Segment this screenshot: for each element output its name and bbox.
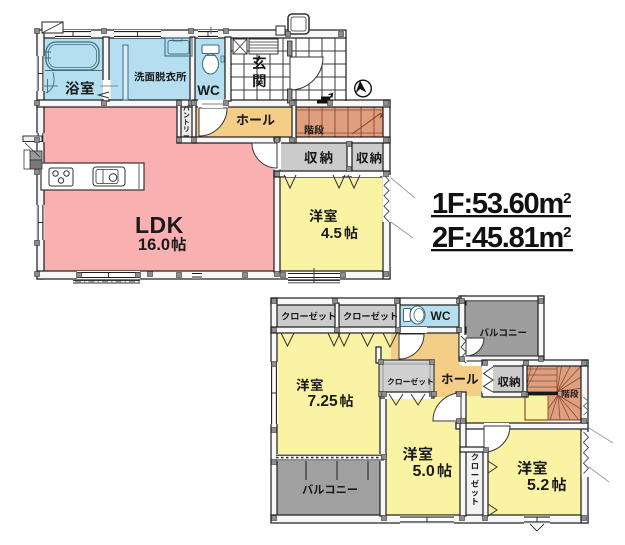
- svg-text:16.0: 16.0: [138, 236, 170, 254]
- svg-text:LDK: LDK: [135, 212, 184, 238]
- svg-text:WC: WC: [431, 309, 451, 323]
- svg-text:5.2: 5.2: [527, 477, 549, 494]
- svg-text:7.25: 7.25: [308, 393, 339, 410]
- svg-text:5.0: 5.0: [413, 463, 435, 480]
- svg-text:4.5: 4.5: [321, 225, 342, 242]
- svg-text:WC: WC: [197, 83, 220, 98]
